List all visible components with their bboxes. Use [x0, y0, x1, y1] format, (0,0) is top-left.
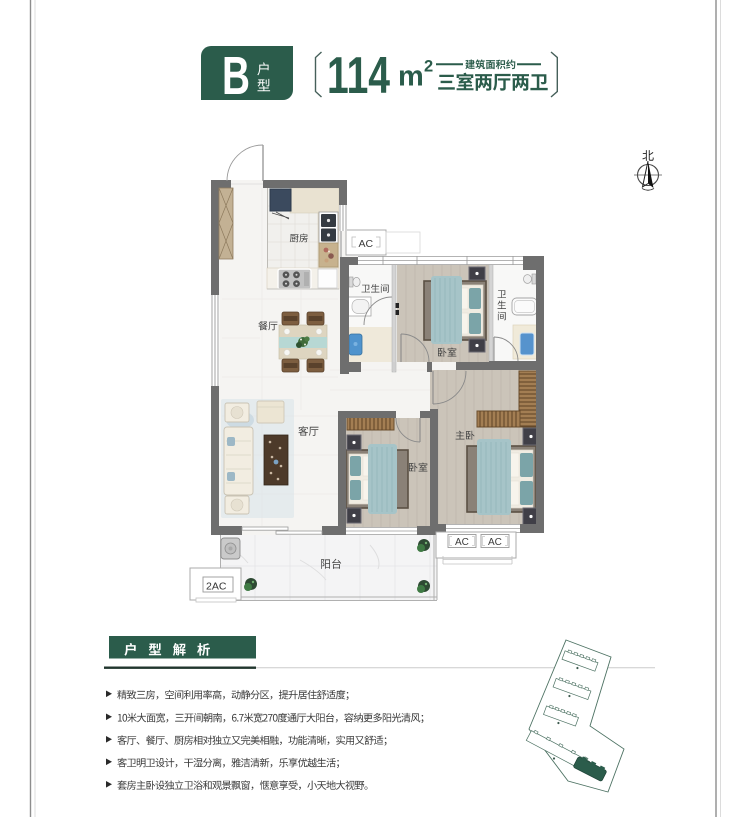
svg-text:B: B: [222, 46, 250, 106]
svg-text:114: 114: [327, 47, 390, 105]
svg-text:m: m: [398, 61, 424, 93]
svg-text:2: 2: [424, 58, 433, 76]
svg-text:2AC: 2AC: [206, 581, 227, 593]
svg-text:AC: AC: [359, 238, 374, 250]
svg-text:AC: AC: [488, 537, 502, 548]
svg-text:AC: AC: [455, 537, 469, 548]
